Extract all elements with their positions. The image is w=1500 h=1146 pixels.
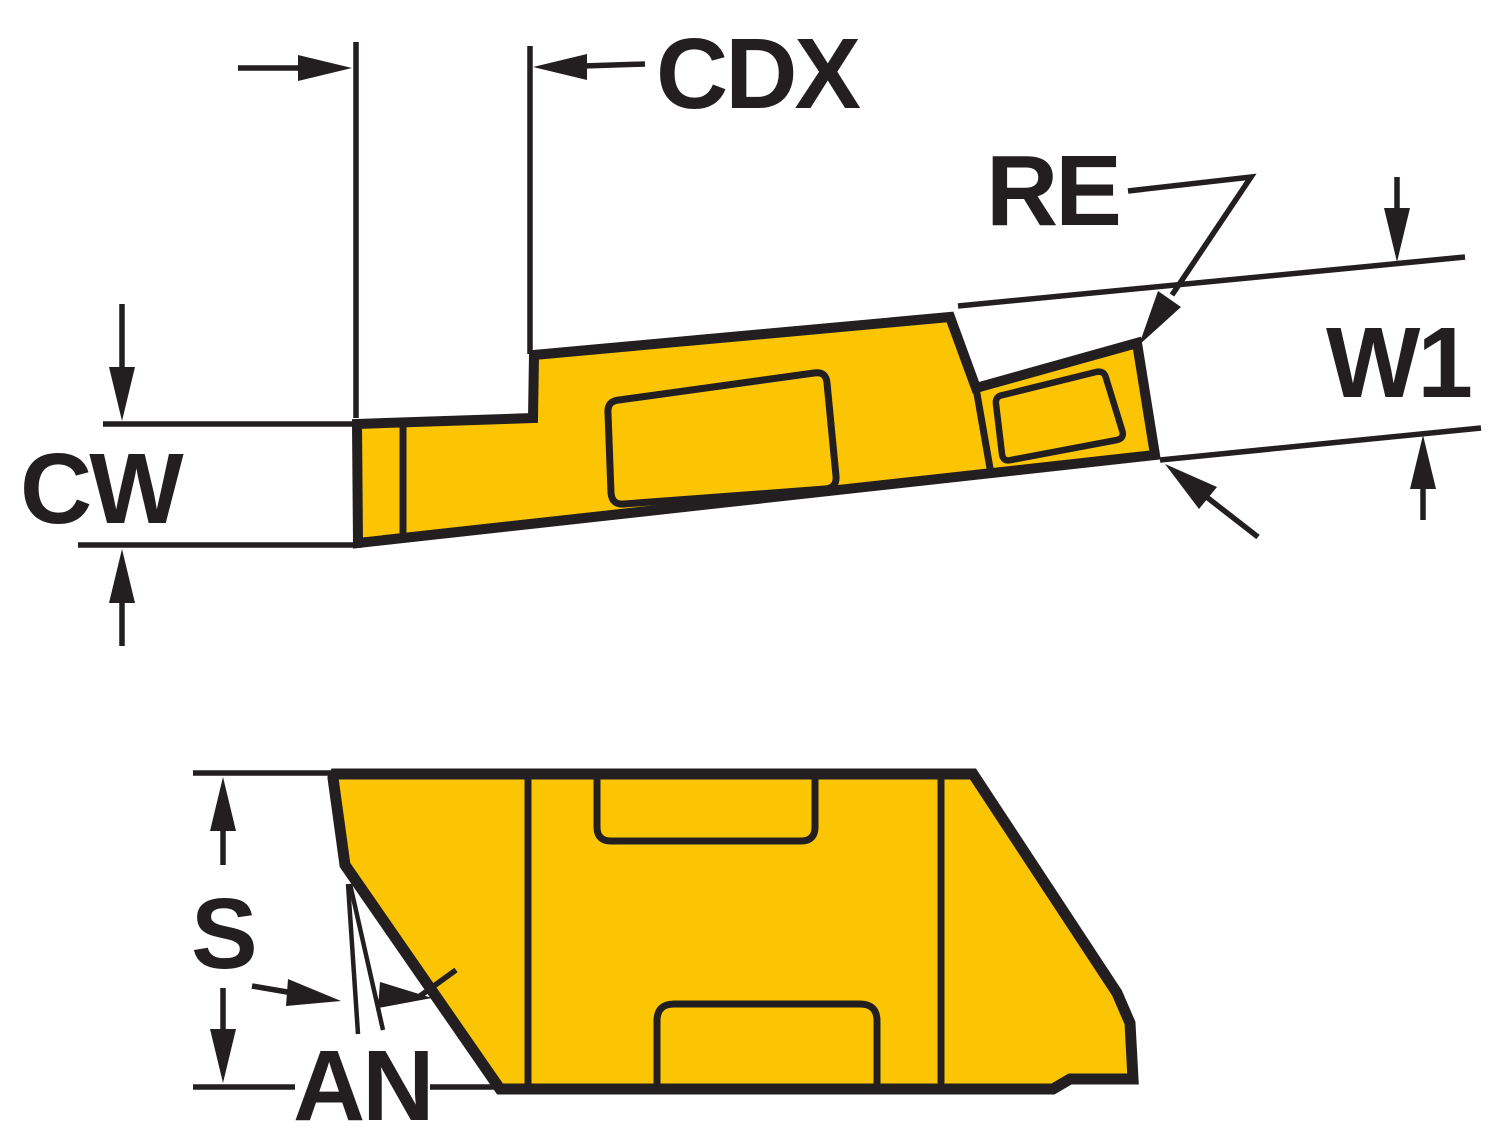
front-view-insert-body [333, 774, 1133, 1089]
w1-extension-line-lower [1160, 428, 1481, 460]
w1-extension-line-upper [958, 257, 1465, 306]
label-cdx: CDX [656, 18, 860, 130]
w1-arrow-up-head [1410, 435, 1436, 489]
diagram-canvas: CDX CW W1 RE S [0, 0, 1500, 1146]
side-view-insert-body [357, 317, 1155, 543]
cdx-arrow-left-head [298, 55, 352, 81]
re-dimension: RE [986, 135, 1258, 537]
label-w1: W1 [1326, 307, 1470, 419]
cw-arrow-up-head [109, 549, 135, 603]
s-arrow-down-head [210, 1029, 236, 1083]
an-arrow-left-head [286, 979, 341, 1006]
w1-arrow-down-head [1384, 208, 1410, 262]
an-arrow-left-tail [252, 986, 293, 993]
insert-dimension-drawing: CDX CW W1 RE S [0, 0, 1500, 1146]
label-an: AN [293, 1030, 431, 1142]
re-leader-arrowhead [1139, 291, 1181, 345]
cdx-arrow-right-head [533, 54, 587, 80]
s-arrow-up-head [210, 777, 236, 831]
cw-dimension: CW [20, 304, 362, 646]
label-re: RE [986, 135, 1119, 247]
insert-front-view [333, 774, 1133, 1089]
cw-arrow-down-head [109, 367, 135, 421]
label-s: S [191, 878, 255, 990]
label-cw: CW [20, 433, 184, 545]
re-leader-line-2 [1204, 495, 1258, 537]
cdx-arrow-right-tail [583, 64, 645, 66]
insert-side-view [357, 317, 1155, 543]
